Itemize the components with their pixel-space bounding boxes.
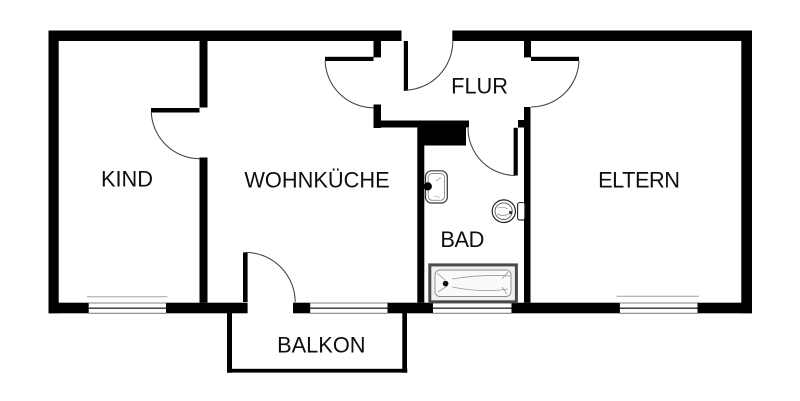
svg-text:WOHNKÜCHE: WOHNKÜCHE (244, 168, 389, 193)
svg-text:KIND: KIND (101, 167, 153, 192)
svg-text:ELTERN: ELTERN (598, 168, 679, 193)
svg-text:BAD: BAD (440, 227, 484, 252)
svg-text:FLUR: FLUR (451, 74, 508, 99)
svg-text:BALKON: BALKON (277, 333, 365, 358)
